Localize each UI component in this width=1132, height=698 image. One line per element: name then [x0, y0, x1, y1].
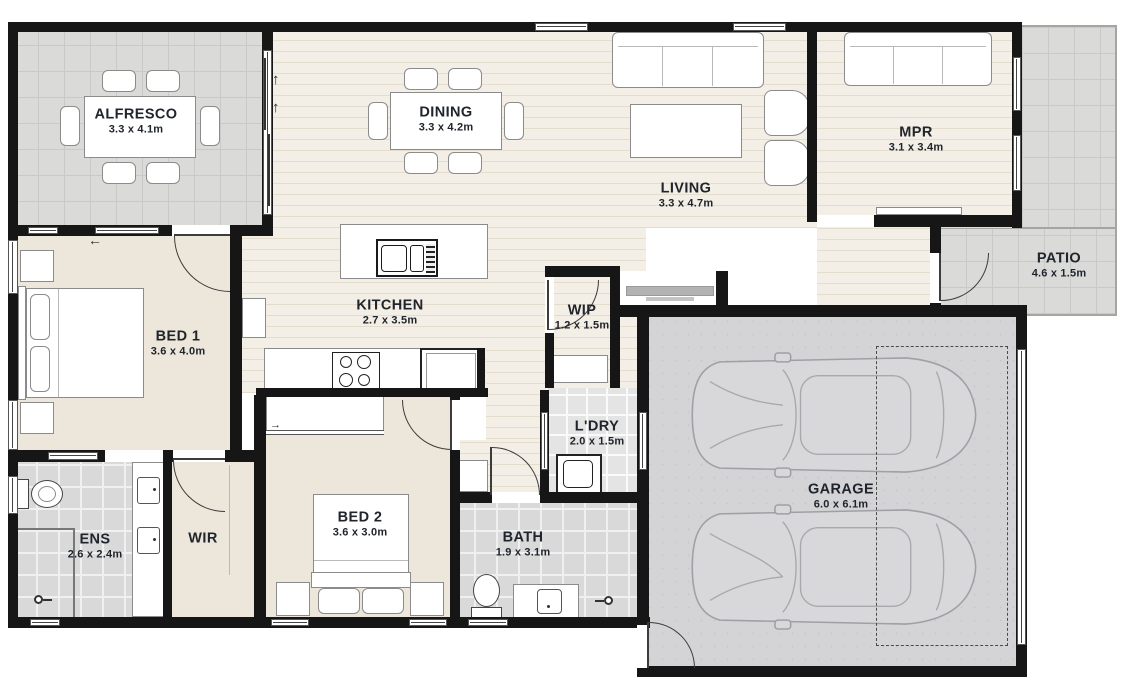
sofa-line	[850, 46, 986, 47]
garage-door	[1017, 349, 1026, 645]
floor-plan: ↑ ↑ ← → ALFRESCO 3.3 x 4.1m DINING 3.3 x…	[0, 0, 1132, 698]
window	[468, 619, 508, 626]
slide-up-arrow-icon: ↑	[272, 100, 280, 115]
tap	[547, 605, 550, 608]
burner	[339, 373, 353, 387]
sofa-line	[662, 46, 663, 86]
nightstand	[276, 582, 310, 616]
sink-basin-small	[410, 245, 424, 272]
stacker-panel	[268, 134, 270, 206]
shower-arm	[595, 600, 604, 602]
room-dims: 2.6 x 2.4m	[68, 549, 123, 562]
stacker-panel	[264, 58, 266, 130]
room-name: WIP	[555, 303, 610, 320]
chair	[448, 68, 482, 90]
bed2-wardrobe	[266, 396, 384, 432]
window	[535, 23, 588, 31]
room-label-patio: PATIO 4.6 x 1.5m	[1032, 251, 1087, 282]
wall	[545, 266, 620, 277]
chair	[146, 162, 180, 184]
room-label-bed2: BED 2 3.6 x 3.0m	[333, 510, 388, 541]
room-label-wip: WIP 1.2 x 1.5m	[555, 303, 610, 334]
room-name: DINING	[419, 105, 474, 122]
nightstand	[20, 250, 54, 282]
opening-mpr	[817, 215, 874, 227]
tv-stand	[646, 297, 694, 301]
slide-up-arrow-icon: ↑	[272, 72, 280, 87]
living-sofa	[612, 32, 764, 88]
sofa-line	[942, 46, 943, 84]
sofa-line	[893, 46, 894, 84]
wall	[545, 333, 554, 388]
pillow	[362, 588, 404, 614]
slide-right-arrow-icon: →	[270, 420, 281, 431]
room-label-ldry: L'DRY 2.0 x 1.5m	[570, 419, 625, 450]
room-label-dining: DINING 3.3 x 4.2m	[419, 105, 474, 136]
room-dims: 3.1 x 3.4m	[889, 142, 944, 155]
room-label-mpr: MPR 3.1 x 3.4m	[889, 125, 944, 156]
chair	[504, 102, 524, 140]
wall	[716, 271, 728, 311]
wall	[807, 22, 817, 222]
room-label-wir: WIR	[188, 530, 217, 547]
sliding-door	[48, 452, 98, 460]
armchair	[764, 140, 810, 186]
room-name: KITCHEN	[356, 298, 423, 315]
wall	[8, 22, 1022, 32]
room-dims: 1.9 x 3.1m	[496, 547, 551, 560]
laundry-tub-basin	[563, 460, 593, 488]
garage-door-zone	[876, 346, 1008, 646]
window	[271, 619, 309, 626]
room-dims: 4.6 x 1.5m	[1032, 268, 1087, 281]
door-leaf	[939, 253, 941, 301]
toilet-bowl-inner	[38, 486, 56, 502]
room-dims: 3.6 x 3.0m	[333, 527, 388, 540]
hall-cupboard	[458, 460, 488, 492]
hall-to-patio-floor	[817, 222, 933, 317]
wall	[450, 492, 648, 503]
burner	[357, 355, 371, 369]
room-dims: 6.0 x 6.1m	[808, 499, 874, 512]
room-label-living: LIVING 3.3 x 4.7m	[659, 181, 714, 212]
bed-linen-line	[314, 560, 408, 561]
wall	[616, 305, 1026, 317]
room-label-bath: BATH 1.9 x 3.1m	[496, 530, 551, 561]
door-leaf	[173, 458, 225, 460]
fridge-inner	[426, 353, 476, 390]
room-label-kitchen: KITCHEN 2.7 x 3.5m	[356, 298, 423, 329]
wall	[872, 215, 1022, 227]
door-opening-bed2	[452, 400, 460, 450]
window	[30, 619, 60, 626]
room-name: WIR	[188, 530, 217, 547]
room-dims: 2.7 x 3.5m	[356, 315, 423, 328]
shower-head-icon	[604, 596, 613, 605]
pillow	[318, 588, 360, 614]
room-dims: 3.6 x 4.0m	[151, 346, 206, 359]
wall	[637, 666, 1027, 677]
burner	[358, 374, 370, 386]
mpr-tv-cabinet	[876, 207, 962, 215]
wall	[8, 22, 18, 628]
wall	[930, 224, 941, 256]
coffee-table	[630, 104, 742, 158]
room-name: MPR	[889, 125, 944, 142]
wall	[254, 395, 266, 625]
room-dims: 3.3 x 4.7m	[659, 198, 714, 211]
window	[8, 476, 18, 514]
shower-screen	[18, 528, 74, 530]
wall	[163, 462, 172, 620]
door-leaf	[490, 447, 492, 495]
tv-screen	[626, 286, 714, 296]
door-leaf	[174, 234, 230, 236]
chair	[404, 68, 438, 90]
chair	[200, 106, 220, 146]
sink-drainer	[426, 244, 435, 273]
wir-shelf-line	[229, 465, 230, 575]
chair	[102, 70, 136, 92]
bed2-base	[311, 572, 411, 588]
shower-arm	[43, 599, 52, 601]
room-label-bed1: BED 1 3.6 x 4.0m	[151, 329, 206, 360]
room-name: ALFRESCO	[95, 107, 178, 124]
window	[28, 227, 58, 234]
shower-head-icon	[34, 595, 43, 604]
pillow	[30, 294, 50, 340]
room-dims: 2.0 x 1.5m	[570, 436, 625, 449]
room-name: LIVING	[659, 181, 714, 198]
room-label-alfresco: ALFRESCO 3.3 x 4.1m	[95, 107, 178, 138]
pillow	[30, 346, 50, 392]
wall	[230, 232, 242, 454]
window	[8, 400, 18, 450]
armchair	[764, 90, 810, 136]
mpr-sofa	[844, 32, 992, 86]
chair	[146, 70, 180, 92]
door-leaf	[647, 622, 649, 668]
tap	[153, 538, 156, 541]
window	[733, 23, 786, 31]
vanity-basin	[137, 477, 160, 504]
wardrobe-slider	[266, 430, 384, 435]
room-name: PATIO	[1032, 251, 1087, 268]
room-name: BED 2	[333, 510, 388, 527]
wall	[610, 268, 620, 388]
door-leaf	[450, 400, 452, 450]
cavity-slider	[639, 412, 647, 470]
room-dims: 3.3 x 4.1m	[95, 124, 178, 137]
sink-basin	[381, 245, 407, 272]
window	[1013, 57, 1021, 111]
window	[409, 619, 447, 626]
cooktop	[332, 352, 380, 392]
chair	[102, 162, 136, 184]
room-name: BATH	[496, 530, 551, 547]
toilet-bowl	[473, 574, 500, 607]
room-name: ENS	[68, 532, 123, 549]
cavity-slider	[541, 412, 548, 470]
door-leaf	[547, 280, 549, 330]
room-dims: 3.3 x 4.2m	[419, 122, 474, 135]
slide-left-arrow-icon: ←	[88, 233, 102, 247]
nightstand	[410, 582, 444, 616]
bed-linen-line	[58, 289, 59, 397]
sofa-line	[618, 46, 758, 47]
window	[1013, 135, 1021, 191]
sofa-line	[712, 46, 713, 86]
room-label-garage: GARAGE 6.0 x 6.1m	[808, 482, 874, 513]
window	[95, 227, 159, 234]
pantry-shelf	[552, 355, 608, 383]
window	[8, 240, 18, 294]
bed1-headboard	[18, 286, 26, 400]
tap	[153, 488, 156, 491]
vanity-basin	[537, 589, 562, 614]
vanity-basin	[137, 527, 160, 554]
chair	[368, 102, 388, 140]
room-label-ens: ENS 2.6 x 2.4m	[68, 532, 123, 563]
linen-cupboard	[242, 298, 266, 338]
nightstand	[20, 402, 54, 434]
wall	[1012, 22, 1022, 228]
room-name: GARAGE	[808, 482, 874, 499]
chair	[448, 152, 482, 174]
burner	[340, 356, 352, 368]
room-name: BED 1	[151, 329, 206, 346]
room-name: L'DRY	[570, 419, 625, 436]
chair	[404, 152, 438, 174]
chair	[60, 106, 80, 146]
wall	[8, 617, 650, 628]
door-opening-ens	[105, 450, 163, 462]
room-dims: 1.2 x 1.5m	[555, 320, 610, 333]
